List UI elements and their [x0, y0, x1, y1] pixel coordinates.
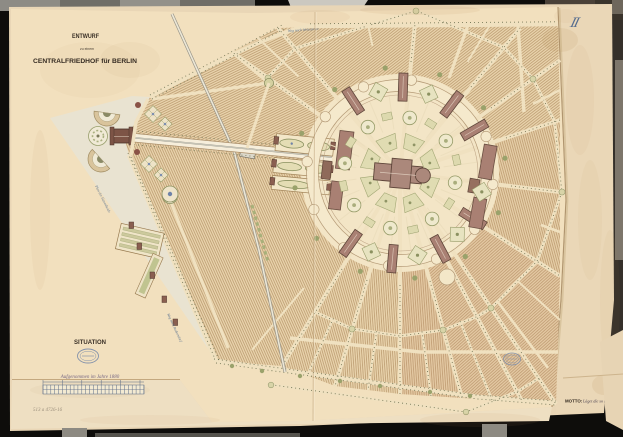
svg-text:MOTTO:: MOTTO: [565, 399, 583, 404]
svg-text:Aufgenommen im Jahre 1880: Aufgenommen im Jahre 1880 [60, 375, 120, 380]
svg-text:ENTWURF: ENTWURF [72, 33, 99, 40]
svg-text:SITUATION: SITUATION [74, 339, 106, 346]
svg-text:513 a 4726-16: 513 a 4726-16 [33, 408, 63, 413]
svg-text:zu einem: zu einem [80, 47, 94, 51]
svg-text:CENTRALFRIEDHOF für BERLIN: CENTRALFRIEDHOF für BERLIN [33, 58, 137, 65]
